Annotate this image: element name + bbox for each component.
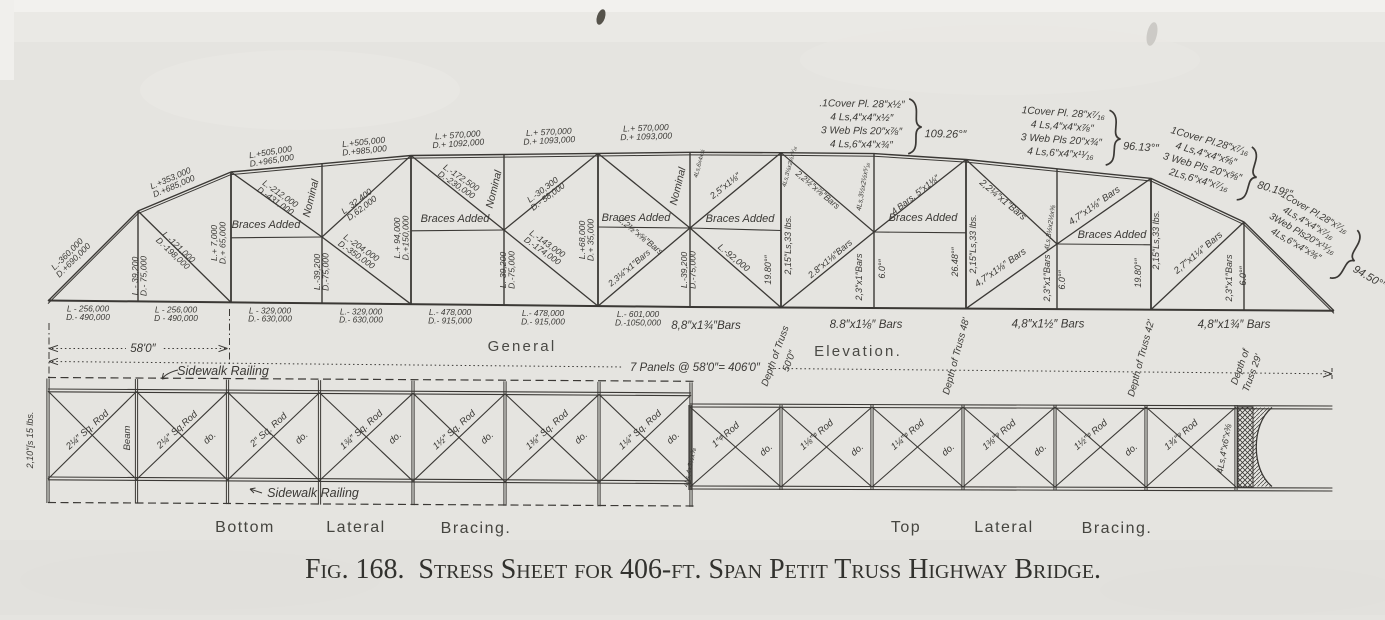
svg-text:4,8″x1½″ Bars: 4,8″x1½″ Bars (1012, 319, 1085, 331)
svg-text:Sidewalk Railing: Sidewalk Railing (267, 486, 359, 500)
svg-text:7 Panels @ 58'0″= 406'0″: 7 Panels @ 58'0″= 406'0″ (630, 362, 761, 374)
svg-text:D.- 490,000: D.- 490,000 (66, 312, 110, 322)
svg-text:2,3″x1″Bars: 2,3″x1″Bars (1224, 254, 1234, 302)
svg-text:Lateral: Lateral (326, 519, 385, 536)
svg-text:Braces Added: Braces Added (889, 212, 959, 224)
svg-text:109.26°″: 109.26°″ (924, 128, 967, 141)
svg-text:Elevation.: Elevation. (814, 343, 902, 360)
svg-text:Braces Added: Braces Added (1078, 229, 1148, 241)
svg-text:Bracing.: Bracing. (1082, 520, 1153, 537)
svg-text:2,15″Ls,33 lbs.: 2,15″Ls,33 lbs. (783, 215, 793, 275)
svg-text:D.+ 65,000: D.+ 65,000 (217, 222, 227, 265)
svg-text:D.- 630,000: D.- 630,000 (248, 314, 292, 324)
svg-text:2,3″x1″Bars: 2,3″x1″Bars (854, 253, 864, 301)
svg-text:Fig. 168. Stress Sheet for 40: Fig. 168. Stress Sheet for 406-ft. Span … (305, 554, 1101, 585)
svg-text:6.0°″: 6.0°″ (877, 259, 887, 279)
svg-text:6.0°″: 6.0°″ (1238, 266, 1248, 286)
svg-text:D.-75,000: D.-75,000 (506, 251, 516, 289)
svg-text:Lateral: Lateral (974, 519, 1033, 536)
svg-text:Braces Added: Braces Added (421, 213, 491, 225)
svg-text:8.8″x1⅛″ Bars: 8.8″x1⅛″ Bars (830, 319, 903, 331)
svg-text:Bottom: Bottom (215, 519, 275, 536)
svg-text:Beam: Beam (122, 426, 133, 451)
svg-text:.1Cover Pl. 28″x½″: .1Cover Pl. 28″x½″ (819, 98, 905, 110)
svg-text:4,8″x1¾″ Bars: 4,8″x1¾″ Bars (1198, 319, 1271, 331)
svg-text:D.+ 1093,000: D.+ 1093,000 (620, 130, 672, 142)
svg-text:4 Ls,4″x4″x½″: 4 Ls,4″x4″x½″ (830, 112, 893, 124)
svg-text:2,10″[s 15 lbs.: 2,10″[s 15 lbs. (25, 412, 35, 470)
svg-text:19.80°″: 19.80°″ (763, 255, 773, 285)
svg-text:3 Web Pls 20″x⅞″: 3 Web Pls 20″x⅞″ (821, 125, 903, 137)
svg-text:D.-1050,000: D.-1050,000 (615, 317, 661, 327)
svg-text:58'0″: 58'0″ (130, 343, 156, 355)
svg-text:26.48°″: 26.48°″ (950, 247, 960, 278)
svg-text:General: General (488, 338, 557, 355)
svg-text:19.80°″: 19.80°″ (1133, 258, 1143, 288)
svg-text:2,3″x1″Bars: 2,3″x1″Bars (1042, 254, 1052, 302)
svg-text:D - 490,000: D - 490,000 (154, 313, 198, 323)
svg-text:D.+ 35,000: D.+ 35,000 (585, 219, 595, 262)
svg-text:96.13°″: 96.13°″ (1123, 140, 1161, 155)
svg-text:Top: Top (891, 519, 921, 536)
svg-text:Sidewalk Railing: Sidewalk Railing (177, 364, 269, 378)
svg-text:D.- 630,000: D.- 630,000 (339, 315, 383, 325)
svg-text:D.- 75,000: D.- 75,000 (138, 256, 148, 296)
svg-text:2,15″Ls,33 lbs.: 2,15″Ls,33 lbs. (1151, 210, 1161, 270)
svg-text:Braces Added: Braces Added (706, 213, 776, 225)
svg-text:D.-75,000: D.-75,000 (320, 253, 330, 291)
svg-text:6.0°″: 6.0°″ (1057, 270, 1067, 290)
svg-text:2,15″Ls,33 lbs.: 2,15″Ls,33 lbs. (968, 214, 978, 274)
svg-text:Bracing.: Bracing. (441, 520, 512, 537)
svg-text:D.+150,000: D.+150,000 (400, 215, 410, 260)
svg-text:8,8″x1¾″Bars: 8,8″x1¾″Bars (671, 320, 741, 332)
svg-text:D.- 915,000: D.- 915,000 (521, 317, 565, 327)
svg-text:Braces Added: Braces Added (602, 212, 672, 224)
svg-text:D.-75,000: D.-75,000 (687, 251, 697, 289)
svg-text:D.- 915,000: D.- 915,000 (428, 316, 472, 326)
svg-text:4 Ls,6″x4″x¾″: 4 Ls,6″x4″x¾″ (830, 139, 893, 151)
svg-text:Braces Added: Braces Added (232, 219, 302, 231)
